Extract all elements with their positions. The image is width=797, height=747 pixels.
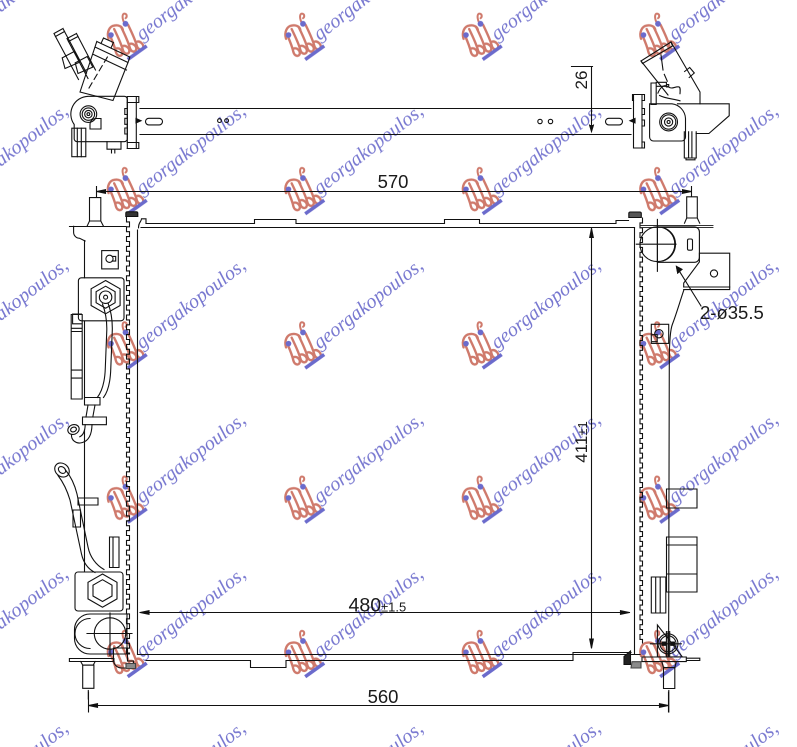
svg-text:26: 26	[572, 71, 591, 90]
svg-text:560: 560	[368, 686, 399, 707]
svg-text:411±1: 411±1	[572, 421, 591, 462]
svg-text:2-ø35.5: 2-ø35.5	[700, 302, 764, 323]
svg-text:570: 570	[378, 171, 409, 192]
